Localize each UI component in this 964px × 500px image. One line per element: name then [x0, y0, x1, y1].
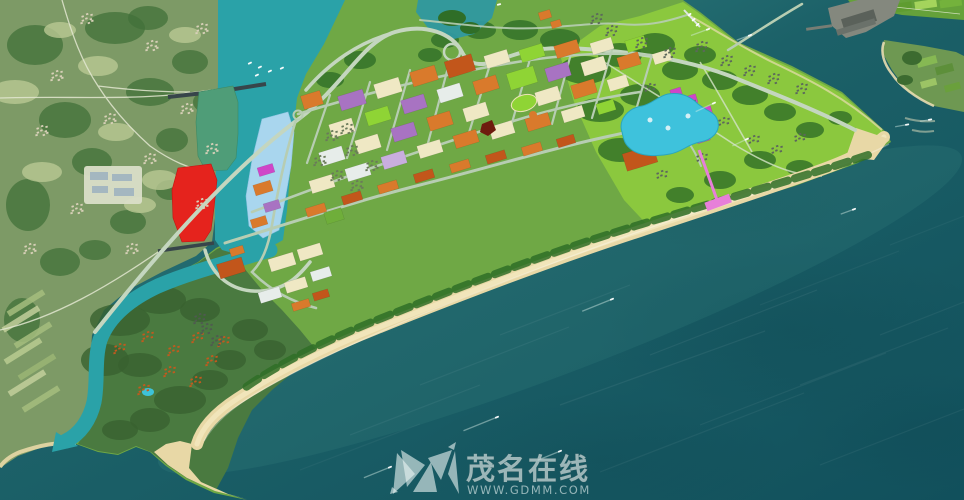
- tree-clump: [684, 46, 716, 64]
- pool: [666, 126, 671, 131]
- headland-woods: [214, 350, 246, 370]
- tree-clump: [666, 187, 694, 203]
- watermark-site-url: WWW.GDMM.COM: [467, 483, 591, 497]
- pool: [686, 114, 691, 119]
- forest-patch: [156, 128, 188, 152]
- forest-patch: [40, 248, 80, 276]
- tree-clump: [418, 48, 442, 62]
- masterplan-map: 茂名在线 WWW.GDMM.COM: [0, 0, 964, 500]
- headland-woods: [118, 353, 162, 377]
- forest-patch: [79, 240, 111, 260]
- green-parcel: [196, 86, 238, 171]
- tree-clump: [796, 122, 824, 138]
- watermark-site-name: 茂名在线: [466, 452, 590, 486]
- pool: [648, 118, 653, 123]
- headland-woods: [254, 340, 286, 360]
- round-hall: [529, 111, 537, 119]
- field-patch: [78, 56, 118, 76]
- forest-patch: [128, 6, 168, 30]
- forest-patch: [6, 179, 50, 231]
- island-woods: [897, 75, 913, 85]
- tree-clump: [764, 103, 796, 121]
- forest-patch: [172, 50, 208, 74]
- tree-clump: [502, 20, 538, 40]
- headland-woods: [232, 319, 268, 341]
- industrial-site: [84, 166, 142, 204]
- forest-patch: [110, 210, 146, 234]
- headland-woods: [102, 420, 138, 440]
- island-woods: [902, 51, 922, 65]
- field-patch: [169, 27, 201, 43]
- headland-woods: [192, 370, 228, 390]
- headland-woods: [154, 386, 206, 414]
- field-patch: [22, 162, 62, 182]
